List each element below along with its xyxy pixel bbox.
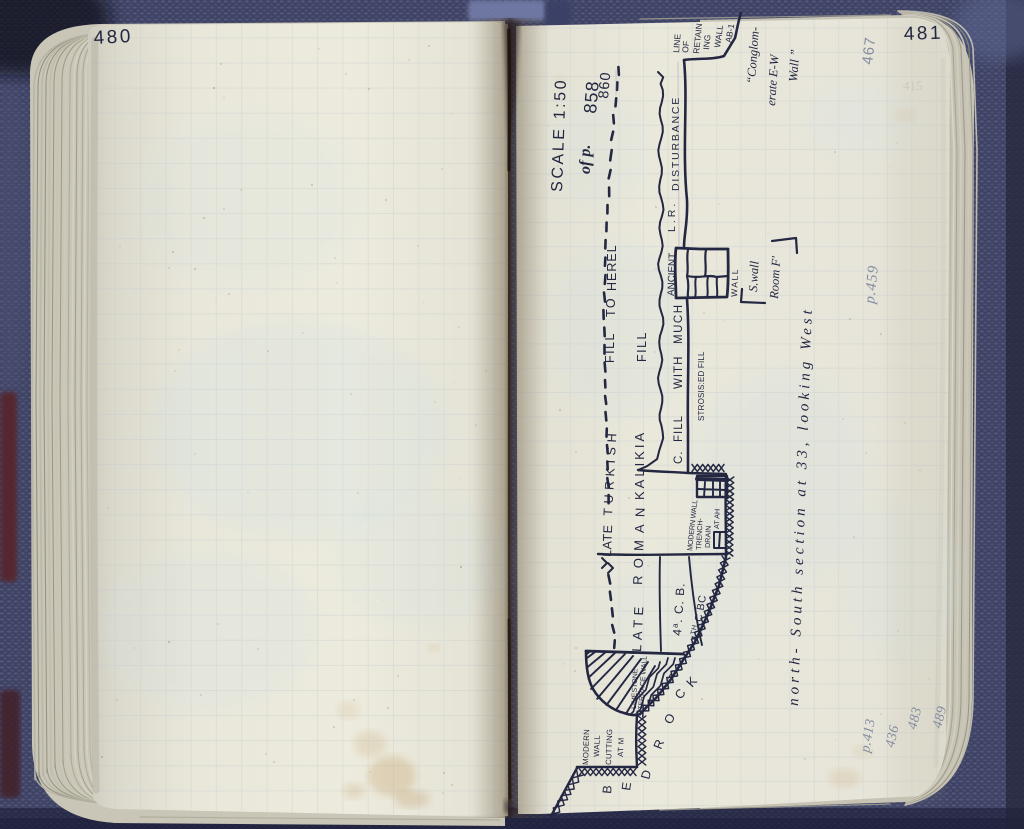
svg-text:of p.: of p. — [577, 145, 594, 174]
svg-text:Room F': Room F' — [767, 256, 783, 301]
svg-text:WALL: WALL — [592, 735, 602, 758]
svg-text:467: 467 — [859, 36, 879, 66]
svg-text:415: 415 — [903, 78, 923, 93]
svg-text:MODERN: MODERN — [581, 729, 591, 765]
svg-text:L.R.: L.R. — [666, 201, 678, 232]
svg-text:860: 860 — [596, 71, 614, 99]
svg-text:480: 480 — [93, 26, 133, 49]
svg-text:OF: OF — [680, 41, 691, 54]
svg-text:FILL: FILL — [635, 331, 649, 362]
svg-text:ROMAN: ROMAN — [630, 500, 648, 585]
svg-text:481: 481 — [903, 23, 943, 45]
svg-text:Wall ”: Wall ” — [786, 49, 802, 82]
svg-text:STROSIS:ED FILL: STROSIS:ED FILL — [697, 351, 706, 421]
svg-text:FILL: FILL — [673, 415, 685, 442]
svg-text:FILL: FILL — [603, 332, 617, 363]
svg-text:WALL: WALL — [729, 268, 740, 297]
svg-text:HEREL: HEREL — [605, 244, 619, 291]
svg-text:TO: TO — [604, 297, 618, 317]
svg-text:MUCH: MUCH — [673, 304, 685, 345]
svg-text:B: B — [600, 785, 615, 795]
svg-text:S.wall: S.wall — [746, 260, 762, 292]
svg-text:DISTURBANCE: DISTURBANCE — [670, 96, 682, 191]
svg-text:AT AH: AT AH — [712, 509, 722, 529]
svg-text:WITH: WITH — [673, 356, 685, 389]
svg-text:ING: ING — [701, 34, 713, 50]
svg-text:C.: C. — [673, 451, 685, 465]
svg-text:KALIKIA: KALIKIA — [632, 430, 647, 500]
svg-text:AT M: AT M — [616, 737, 626, 757]
svg-text:LATE: LATE — [629, 602, 647, 652]
svg-text:LATE: LATE — [600, 524, 615, 557]
svg-text:CUTTING: CUTTING — [604, 729, 614, 765]
